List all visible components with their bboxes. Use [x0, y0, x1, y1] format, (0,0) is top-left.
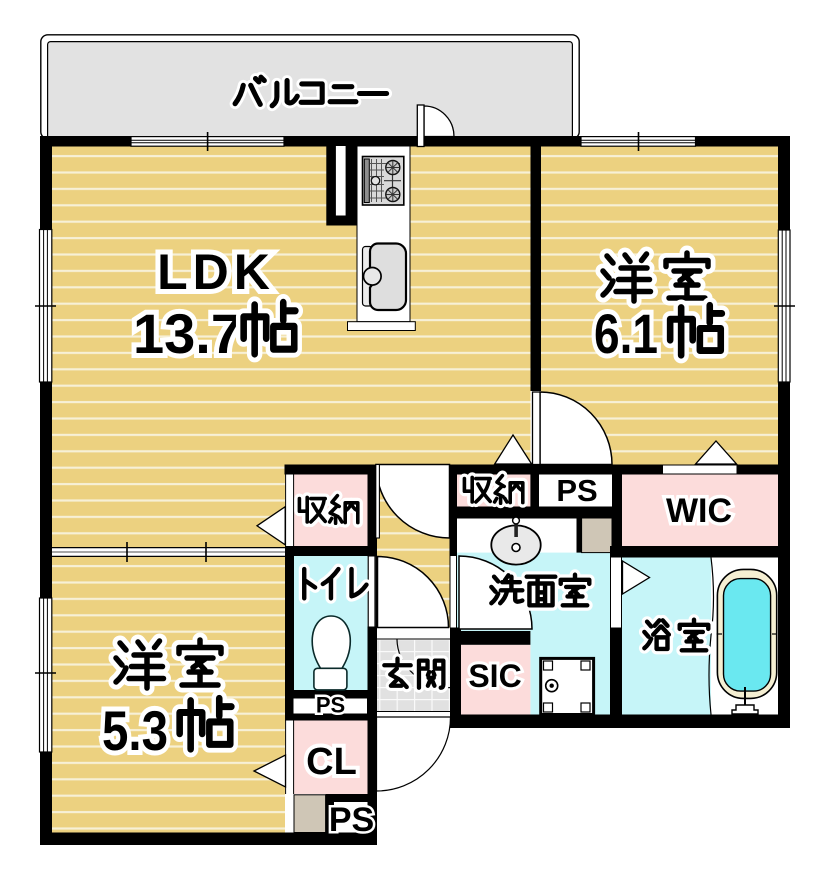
svg-text:PS: PS: [329, 801, 374, 839]
svg-text:PS: PS: [316, 693, 345, 718]
svg-text:LDK: LDK: [157, 244, 275, 300]
svg-text:5.3: 5.3: [102, 699, 168, 762]
svg-text:CL: CL: [306, 741, 357, 783]
svg-text:SIC: SIC: [468, 658, 521, 694]
svg-text:PS: PS: [556, 473, 597, 508]
svg-text:13.7: 13.7: [133, 302, 242, 365]
svg-text:6.1: 6.1: [594, 302, 658, 365]
svg-text:WIC: WIC: [666, 492, 732, 530]
